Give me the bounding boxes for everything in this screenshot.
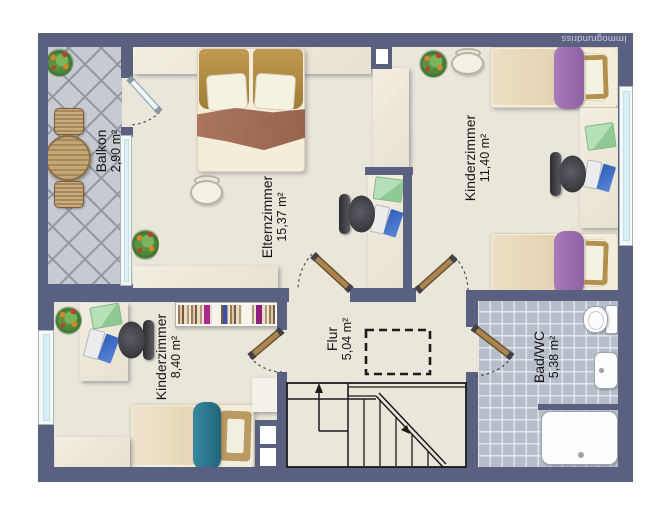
door-leaf-kinderzimmer-left-icon [250, 330, 282, 357]
door-arcs [129, 112, 512, 376]
watermark-logo: Immogrundriss [556, 32, 632, 44]
room-label-kinderzimmer-left: Kinderzimmer 8,40 m² [151, 308, 185, 406]
room-name: Elternzimmer [259, 176, 275, 258]
room-area: 2,90 m² [109, 130, 124, 172]
room-name: Kinderzimmer [462, 115, 478, 201]
room-label-bad-wc: Bad/WC 5,38 m² [529, 313, 563, 401]
room-label-elternzimmer: Elternzimmer 15,37 m² [257, 168, 291, 266]
door-arc-kinderzimmer-right [455, 257, 468, 291]
room-area: 15,37 m² [275, 192, 290, 241]
door-arc-bath [473, 357, 512, 376]
room-name: Bad/WC [531, 331, 547, 383]
room-area: 5,04 m² [340, 318, 355, 360]
room-label-flur: Flur 5,04 m² [322, 295, 356, 383]
room-name: Flur [324, 327, 340, 351]
door-arc-elternzimmer [298, 254, 312, 290]
door-leaf-kinderzimmer-right-icon [417, 257, 455, 291]
doors-stairs-overlay [0, 0, 665, 513]
room-name: Kinderzimmer [153, 314, 169, 400]
room-area: 8,40 m² [169, 336, 184, 378]
room-area: 5,38 m² [547, 336, 562, 378]
stairs-cut-arrow [401, 425, 410, 434]
floor-plan: Balkon 2,90 m² Elternzimmer 15,37 m² Kin… [0, 0, 665, 513]
room-label-kinderzimmer-right: Kinderzimmer 11,40 m² [460, 109, 494, 207]
room-area: 11,40 m² [478, 134, 493, 182]
glass-door-leaf-icon [129, 78, 160, 112]
staircase-icon [287, 383, 466, 467]
door-arc-balcony [129, 112, 160, 125]
stairs-up-arrow [315, 383, 323, 393]
door-leaf-elternzimmer-icon [313, 255, 351, 290]
ceiling-opening-dashed [366, 330, 430, 374]
door-arc-kinderzimmer-left [250, 357, 282, 372]
door-leaf-bath-icon [473, 327, 512, 357]
room-label-balkon: Balkon 2,90 m² [92, 111, 124, 191]
room-name: Balkon [93, 130, 109, 173]
